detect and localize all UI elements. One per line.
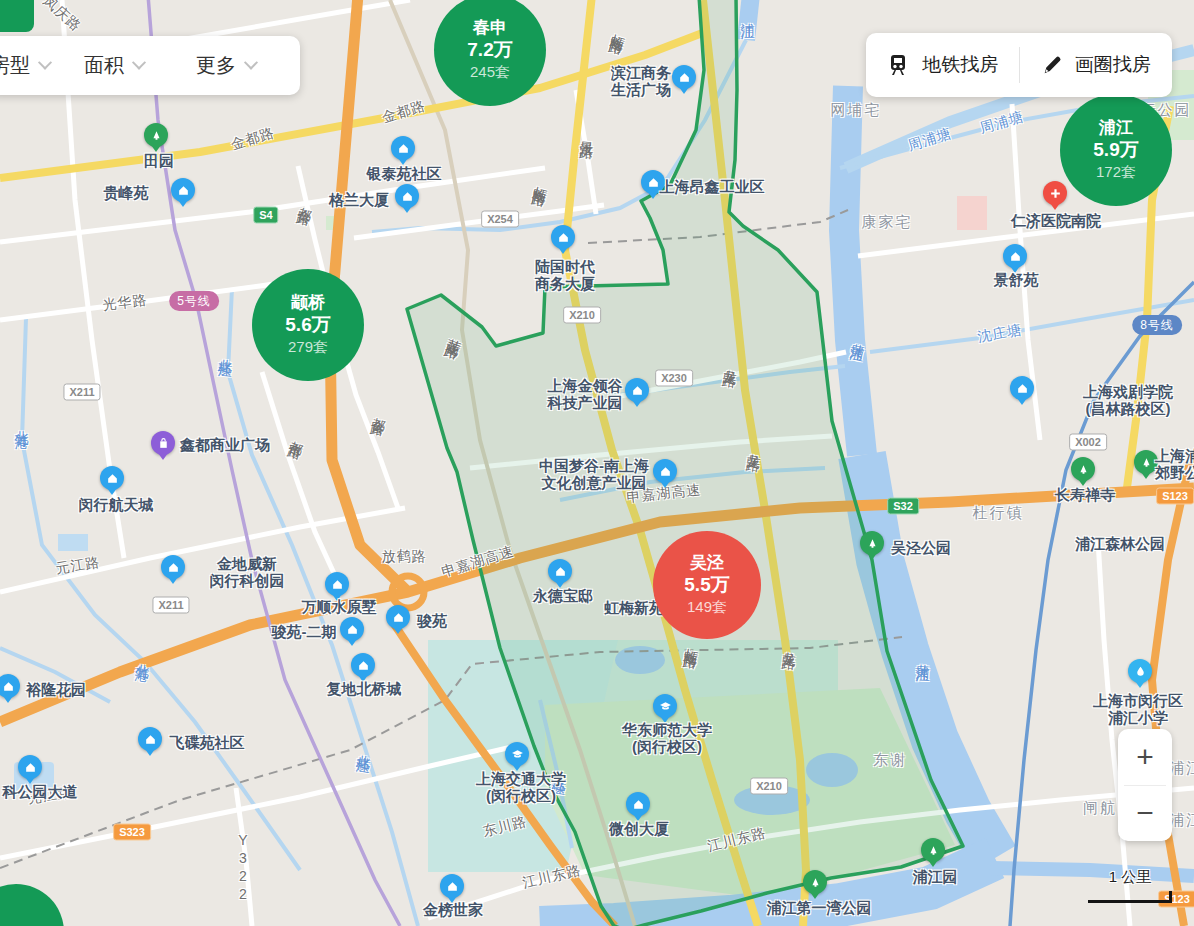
bubble-avg-price: 5.9万 — [1093, 139, 1138, 161]
district-price-bubble[interactable]: 颛桥5.6万279套 — [252, 269, 364, 381]
bubble-listing-count: 172套 — [1096, 161, 1136, 183]
scale-bar: 1 公里 — [1088, 868, 1172, 903]
map-app: 金都路金都路都会路都会路都市路光华路元江路元江路放鹤路申嘉湖高速申嘉湖高速虹梅南… — [0, 0, 1194, 926]
zoom-in-button[interactable]: + — [1118, 729, 1172, 785]
scale-bar-label: 1 公里 — [1088, 868, 1172, 887]
filter-area-label: 面积 — [84, 52, 124, 79]
bubble-district-name: 浦江 — [1099, 117, 1133, 139]
map-canvas[interactable]: 金都路金都路都会路都会路都市路光华路元江路元江路放鹤路申嘉湖高速申嘉湖高速虹梅南… — [0, 0, 1194, 926]
bubble-listing-count: 149套 — [687, 596, 727, 618]
metro-search-button[interactable]: 地铁找房 — [866, 33, 1019, 97]
bubble-listing-count: 279套 — [288, 336, 328, 358]
scale-bar-line — [1088, 891, 1172, 903]
filter-more[interactable]: 更多 — [196, 52, 296, 79]
metro-search-label: 地铁找房 — [922, 52, 998, 78]
draw-circle-search-label: 画圈找房 — [1075, 52, 1151, 78]
map-toolbar: 地铁找房 画圈找房 — [866, 33, 1172, 97]
bubble-district-name: 春申 — [473, 17, 507, 39]
chevron-down-icon — [38, 55, 52, 69]
filter-more-label: 更多 — [196, 52, 236, 79]
filter-bar: 房型 面积 更多 — [0, 36, 300, 95]
filter-room-type[interactable]: 房型 — [0, 52, 80, 79]
basemap-graphics — [0, 0, 1194, 926]
chevron-down-icon — [132, 55, 146, 69]
bubble-district-name: 颛桥 — [291, 292, 325, 314]
bubble-avg-price: 7.2万 — [467, 39, 512, 61]
bubble-avg-price: 5.5万 — [684, 574, 729, 596]
metro-train-icon — [886, 53, 910, 77]
chevron-down-icon — [244, 55, 258, 69]
bubble-listing-count: 245套 — [470, 61, 510, 83]
district-price-bubble[interactable]: 浦江5.9万172套 — [1060, 94, 1172, 206]
filter-room-type-label: 房型 — [0, 52, 30, 79]
pencil-icon — [1041, 54, 1063, 76]
zoom-control: + − — [1118, 729, 1172, 841]
draw-circle-search-button[interactable]: 画圈找房 — [1020, 33, 1173, 97]
filter-area[interactable]: 面积 — [84, 52, 192, 79]
bubble-avg-price: 5.6万 — [285, 314, 330, 336]
district-price-bubble[interactable]: 吴泾5.5万149套 — [653, 531, 761, 639]
corner-partial-marker — [0, 0, 34, 32]
zoom-out-button[interactable]: − — [1118, 786, 1172, 842]
bubble-district-name: 吴泾 — [690, 552, 724, 574]
